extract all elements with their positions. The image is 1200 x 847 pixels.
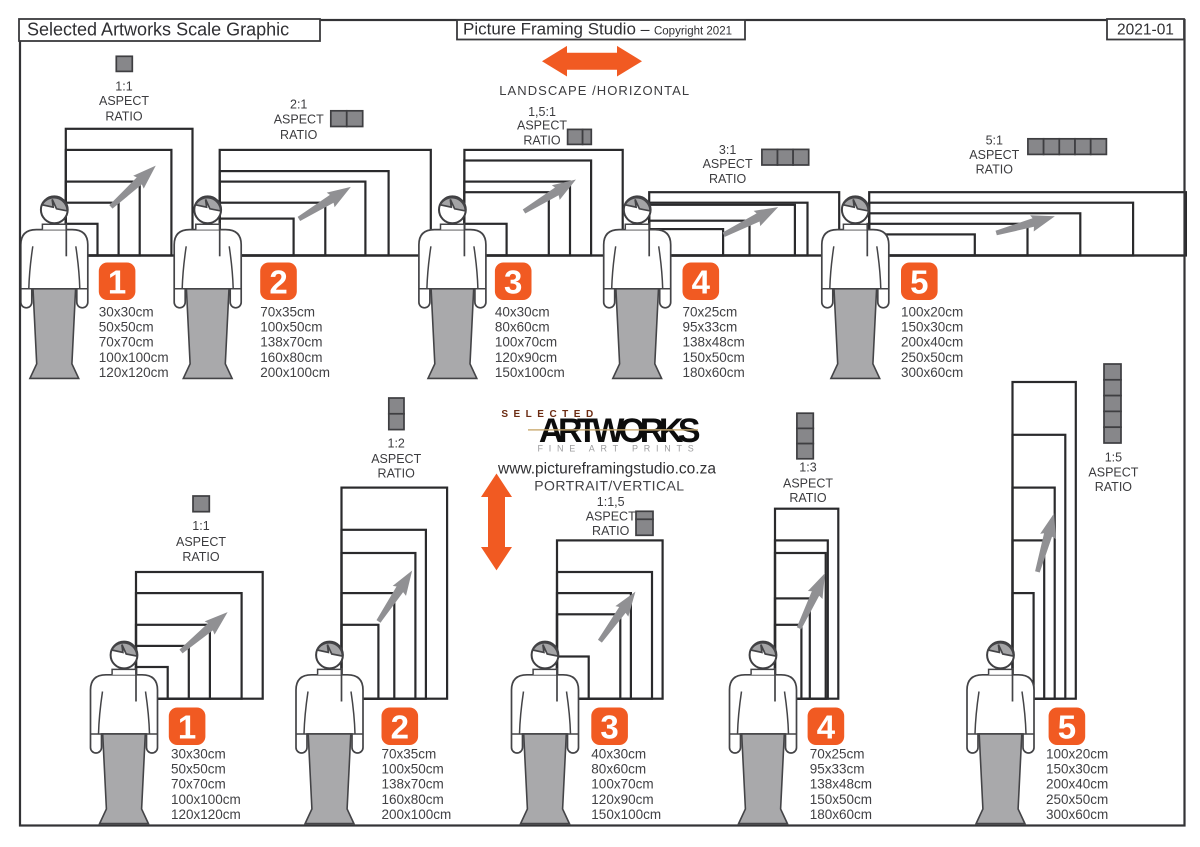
svg-text:95x33cm: 95x33cm <box>683 320 738 335</box>
svg-text:FINE ART PRINTS: FINE ART PRINTS <box>538 444 700 454</box>
svg-text:3:1: 3:1 <box>719 143 736 157</box>
svg-text:50x50cm: 50x50cm <box>171 762 226 777</box>
svg-text:ASPECT: ASPECT <box>517 119 567 133</box>
svg-text:150x100cm: 150x100cm <box>495 365 565 380</box>
svg-text:5:1: 5:1 <box>986 134 1003 148</box>
svg-text:70x70cm: 70x70cm <box>99 335 154 350</box>
svg-text:40x30cm: 40x30cm <box>495 304 550 319</box>
svg-text:100x50cm: 100x50cm <box>260 320 322 335</box>
svg-text:ASPECT: ASPECT <box>176 535 226 549</box>
svg-text:95x33cm: 95x33cm <box>810 762 865 777</box>
svg-text:138x70cm: 138x70cm <box>382 777 444 792</box>
svg-text:150x50cm: 150x50cm <box>810 792 872 807</box>
svg-text:160x80cm: 160x80cm <box>382 792 444 807</box>
svg-text:80x60cm: 80x60cm <box>495 320 550 335</box>
svg-text:70x25cm: 70x25cm <box>683 304 738 319</box>
svg-text:RATIO: RATIO <box>378 466 416 480</box>
svg-text:300x60cm: 300x60cm <box>1046 807 1108 822</box>
svg-text:1: 1 <box>178 709 196 746</box>
svg-text:RATIO: RATIO <box>789 491 827 505</box>
svg-text:70x35cm: 70x35cm <box>260 304 315 319</box>
svg-text:2: 2 <box>269 264 287 301</box>
svg-text:100x70cm: 100x70cm <box>495 335 557 350</box>
svg-text:150x50cm: 150x50cm <box>683 350 745 365</box>
svg-text:1:1,5: 1:1,5 <box>597 495 625 509</box>
svg-text:100x100cm: 100x100cm <box>99 350 169 365</box>
svg-text:70x70cm: 70x70cm <box>171 777 226 792</box>
svg-text:120x120cm: 120x120cm <box>171 807 241 822</box>
svg-text:www.pictureframingstudio.co.za: www.pictureframingstudio.co.za <box>497 461 716 478</box>
svg-text:RATIO: RATIO <box>976 163 1014 177</box>
svg-text:100x70cm: 100x70cm <box>591 777 653 792</box>
svg-text:3: 3 <box>600 709 618 746</box>
svg-text:138x70cm: 138x70cm <box>260 335 322 350</box>
svg-text:120x90cm: 120x90cm <box>591 792 653 807</box>
svg-text:3: 3 <box>504 264 522 301</box>
svg-text:30x30cm: 30x30cm <box>99 304 154 319</box>
svg-text:100x20cm: 100x20cm <box>1046 746 1108 761</box>
svg-text:ASPECT: ASPECT <box>703 157 753 171</box>
svg-text:250x50cm: 250x50cm <box>1046 792 1108 807</box>
svg-text:1,5:1: 1,5:1 <box>528 105 556 119</box>
svg-text:Selected Artworks Scale Graphi: Selected Artworks Scale Graphic <box>27 20 289 40</box>
svg-text:RATIO: RATIO <box>280 128 318 142</box>
svg-text:LANDSCAPE /HORIZONTAL: LANDSCAPE /HORIZONTAL <box>499 83 690 98</box>
svg-text:5: 5 <box>1058 709 1076 746</box>
svg-text:1: 1 <box>108 264 126 301</box>
svg-text:RATIO: RATIO <box>709 172 747 186</box>
svg-text:ASPECT: ASPECT <box>1088 465 1138 479</box>
svg-text:138x48cm: 138x48cm <box>683 335 745 350</box>
svg-text:138x48cm: 138x48cm <box>810 777 872 792</box>
svg-text:ASPECT: ASPECT <box>783 477 833 491</box>
svg-text:RATIO: RATIO <box>182 550 220 564</box>
svg-text:160x80cm: 160x80cm <box>260 350 322 365</box>
svg-text:ASPECT: ASPECT <box>99 94 149 108</box>
svg-text:200x40cm: 200x40cm <box>901 335 963 350</box>
svg-text:RATIO: RATIO <box>105 109 143 123</box>
svg-text:150x30cm: 150x30cm <box>1046 762 1108 777</box>
svg-text:ASPECT: ASPECT <box>274 113 324 127</box>
svg-text:200x40cm: 200x40cm <box>1046 777 1108 792</box>
svg-text:150x30cm: 150x30cm <box>901 320 963 335</box>
svg-text:5: 5 <box>910 264 928 301</box>
svg-text:1:5: 1:5 <box>1105 451 1122 465</box>
svg-text:200x100cm: 200x100cm <box>382 807 452 822</box>
svg-text:4: 4 <box>817 709 836 746</box>
svg-text:200x100cm: 200x100cm <box>260 365 330 380</box>
svg-text:ASPECT: ASPECT <box>969 148 1019 162</box>
svg-text:ASPECT: ASPECT <box>586 510 636 524</box>
svg-text:2021-01: 2021-01 <box>1117 22 1174 39</box>
svg-text:100x50cm: 100x50cm <box>382 762 444 777</box>
svg-text:1:3: 1:3 <box>799 461 816 475</box>
svg-text:180x60cm: 180x60cm <box>683 365 745 380</box>
svg-text:100x20cm: 100x20cm <box>901 304 963 319</box>
svg-text:120x90cm: 120x90cm <box>495 350 557 365</box>
svg-text:2:1: 2:1 <box>290 98 307 112</box>
svg-text:100x100cm: 100x100cm <box>171 792 241 807</box>
svg-text:PORTRAIT/VERTICAL: PORTRAIT/VERTICAL <box>534 478 684 494</box>
svg-text:4: 4 <box>692 264 711 301</box>
svg-text:150x100cm: 150x100cm <box>591 807 661 822</box>
svg-text:300x60cm: 300x60cm <box>901 365 963 380</box>
svg-text:ASPECT: ASPECT <box>371 452 421 466</box>
svg-text:80x60cm: 80x60cm <box>591 762 646 777</box>
svg-text:120x120cm: 120x120cm <box>99 365 169 380</box>
svg-text:RATIO: RATIO <box>523 133 561 147</box>
svg-text:40x30cm: 40x30cm <box>591 746 646 761</box>
svg-text:30x30cm: 30x30cm <box>171 746 226 761</box>
svg-text:1:1: 1:1 <box>192 519 209 533</box>
svg-text:250x50cm: 250x50cm <box>901 350 963 365</box>
svg-text:2: 2 <box>391 709 409 746</box>
svg-text:70x25cm: 70x25cm <box>810 746 865 761</box>
svg-text:RATIO: RATIO <box>1095 480 1133 494</box>
svg-text:1:2: 1:2 <box>388 436 405 450</box>
svg-text:70x35cm: 70x35cm <box>382 746 437 761</box>
svg-text:RATIO: RATIO <box>592 524 630 538</box>
svg-text:50x50cm: 50x50cm <box>99 320 154 335</box>
svg-text:180x60cm: 180x60cm <box>810 807 872 822</box>
svg-text:1:1: 1:1 <box>115 79 132 93</box>
